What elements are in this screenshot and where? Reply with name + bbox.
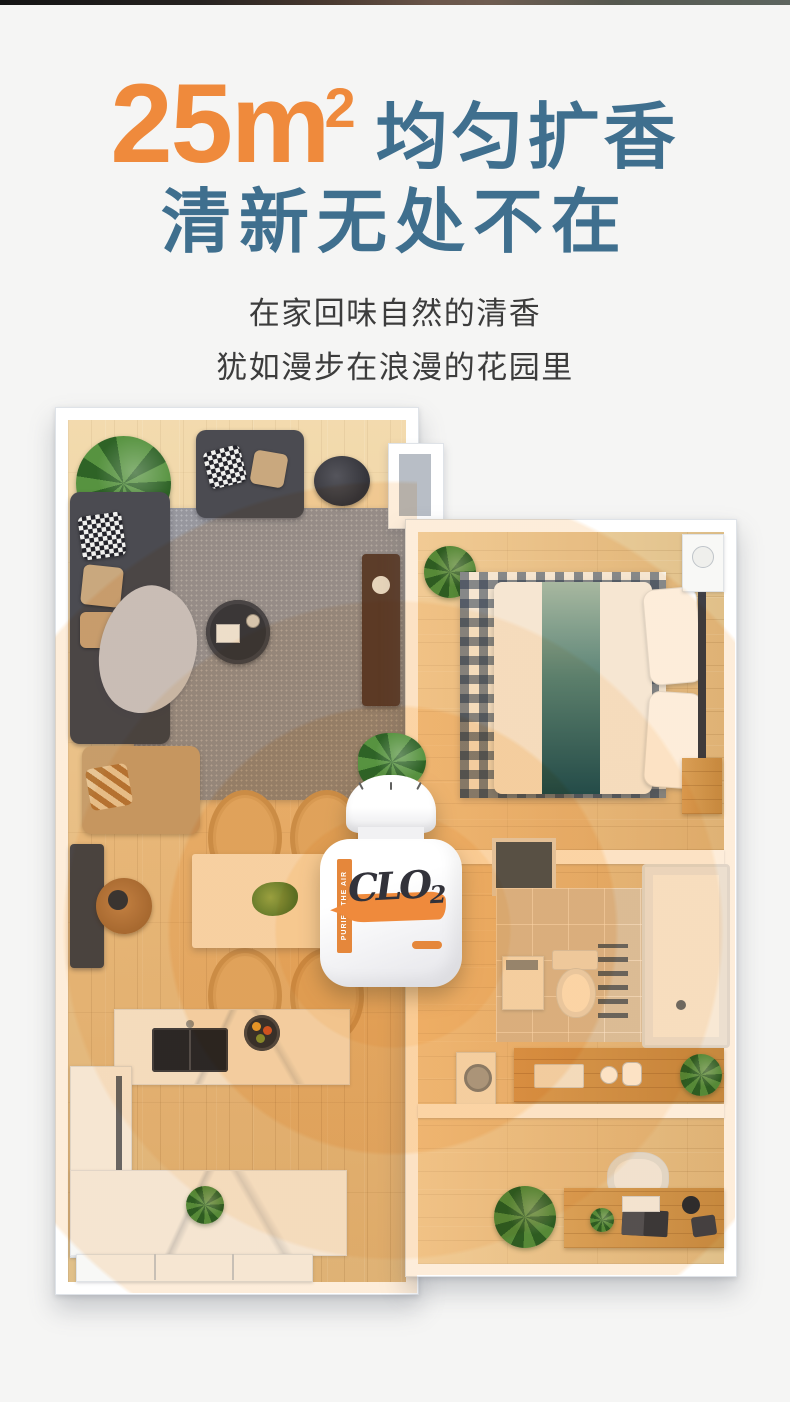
bathroom-cabinet-top bbox=[506, 960, 538, 970]
bottle-cap bbox=[346, 775, 436, 833]
area-number: 25m bbox=[110, 61, 328, 186]
coffee-table-book bbox=[216, 624, 240, 643]
sofa-pillow bbox=[77, 511, 127, 561]
shower-drain bbox=[676, 1000, 686, 1010]
interior-wall bbox=[418, 850, 724, 864]
vanity-plant bbox=[680, 1054, 722, 1096]
desk-plant bbox=[590, 1208, 614, 1232]
promo-page: 25m2 均匀扩香 清新无处不在 在家回味自然的清香 犹如漫步在浪漫的花园里 bbox=[0, 0, 790, 1402]
subtitle-line1: 在家回味自然的清香 bbox=[0, 288, 790, 333]
brand-text: CLO bbox=[347, 861, 430, 910]
sofa-pillow bbox=[80, 564, 124, 608]
toilet-bowl bbox=[556, 968, 596, 1018]
headline: 25m2 均匀扩香 清新无处不在 bbox=[0, 66, 790, 259]
kitchen-plant bbox=[186, 1186, 224, 1224]
desk-accessory bbox=[691, 1214, 718, 1237]
armchair-pillow bbox=[249, 449, 288, 488]
nightstand bbox=[682, 758, 722, 814]
window-mullion bbox=[232, 1254, 234, 1280]
vanity-jar bbox=[622, 1062, 642, 1086]
cabinet-decor bbox=[372, 576, 390, 594]
window-mullion bbox=[154, 1254, 156, 1280]
coffee-cup bbox=[246, 614, 260, 628]
sink-divider bbox=[189, 1030, 191, 1070]
bottle-body: PURIFY THE AIR CLO2 bbox=[320, 839, 462, 987]
fruit bbox=[263, 1026, 272, 1035]
brand-exponent: 2 bbox=[429, 879, 447, 909]
faucet bbox=[186, 1020, 194, 1028]
headline-text: 均匀扩香 bbox=[376, 101, 680, 176]
cap-vent-mark bbox=[358, 782, 364, 790]
subtitle-line2: 犹如漫步在浪漫的花园里 bbox=[0, 342, 790, 387]
previous-section-edge bbox=[0, 0, 790, 5]
floor-lamp bbox=[314, 456, 370, 506]
chaise-pillow bbox=[85, 763, 134, 812]
bed-blanket bbox=[542, 582, 600, 794]
product-bottle: PURIFY THE AIR CLO2 bbox=[320, 775, 462, 987]
bed-pillow bbox=[642, 586, 704, 686]
headline-line1: 25m2 均匀扩香 bbox=[0, 66, 790, 182]
kitchen-counter bbox=[114, 1009, 350, 1085]
washer-door bbox=[464, 1064, 492, 1092]
cap-vent-mark bbox=[416, 782, 422, 790]
headline-line2: 清新无处不在 bbox=[0, 186, 790, 259]
balcony-window bbox=[76, 1254, 313, 1282]
desk-accessory bbox=[682, 1196, 700, 1214]
nightstand-lamp bbox=[692, 546, 714, 568]
fruit-bowl bbox=[244, 1015, 280, 1051]
notepad bbox=[622, 1196, 660, 1212]
net-weight-badge bbox=[412, 941, 442, 949]
vanity-tray bbox=[534, 1064, 584, 1088]
brand-label: CLO2 bbox=[343, 860, 451, 913]
shower-tray bbox=[642, 864, 730, 1048]
laptop bbox=[621, 1209, 668, 1237]
area-exponent: 2 bbox=[325, 76, 356, 139]
cap-vent-mark bbox=[390, 782, 392, 790]
duct-shaft-inner bbox=[399, 454, 431, 516]
floorplan: PURIFY THE AIR CLO2 bbox=[55, 407, 735, 1293]
fruit bbox=[256, 1034, 265, 1043]
area-value: 25m2 bbox=[110, 66, 355, 182]
towel-ladder bbox=[598, 944, 628, 1018]
duct-shaft bbox=[388, 443, 444, 529]
side-table-bowl bbox=[108, 890, 128, 910]
office-plant bbox=[494, 1186, 556, 1248]
interior-wall bbox=[418, 1104, 724, 1118]
fruit bbox=[252, 1022, 261, 1031]
vanity-cup bbox=[600, 1066, 618, 1084]
toilet-tank bbox=[552, 950, 598, 970]
